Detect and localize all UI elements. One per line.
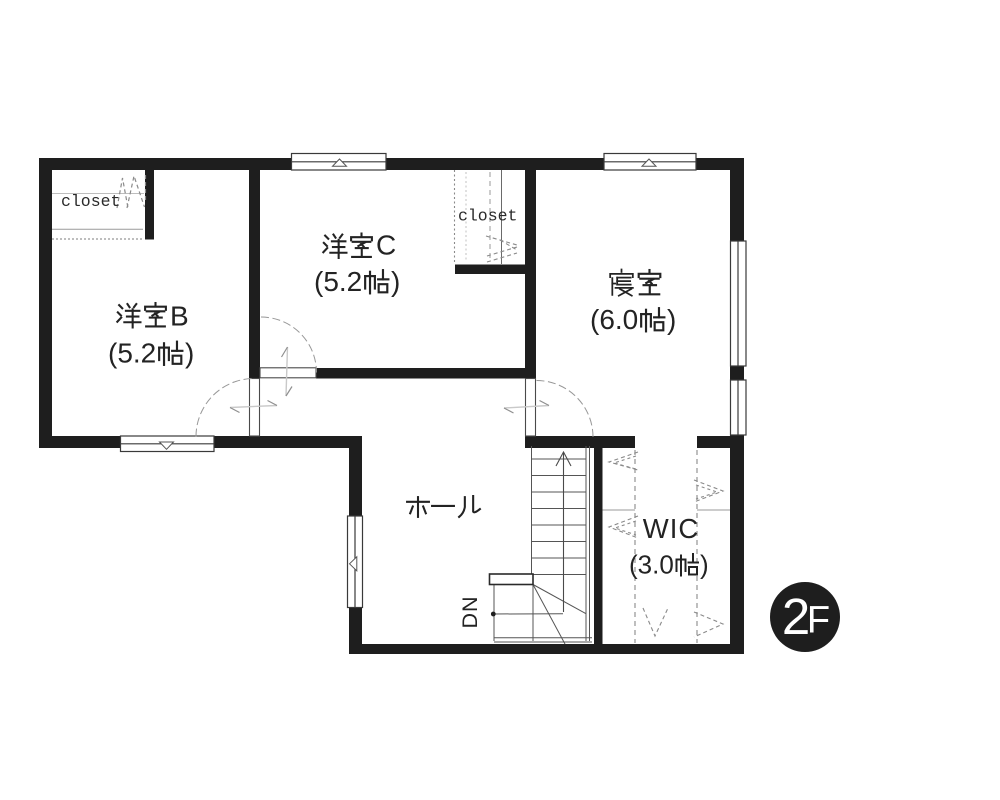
svg-text:B: B [170, 301, 189, 332]
svg-text:(6.0: (6.0 [590, 304, 638, 335]
svg-text:F: F [807, 600, 830, 642]
svg-text:(5.2: (5.2 [314, 266, 362, 297]
svg-text:): ) [667, 304, 676, 335]
svg-text:(5.2: (5.2 [108, 338, 156, 369]
svg-text:DN: DN [458, 595, 482, 628]
svg-text:WIC: WIC [643, 513, 699, 544]
svg-text:closet: closet [61, 192, 120, 211]
svg-text:): ) [185, 338, 194, 369]
svg-text:): ) [700, 550, 709, 580]
svg-text:C: C [376, 230, 396, 261]
svg-text:closet: closet [458, 207, 517, 226]
svg-text:): ) [391, 266, 400, 297]
svg-text:(3.0: (3.0 [629, 550, 674, 580]
